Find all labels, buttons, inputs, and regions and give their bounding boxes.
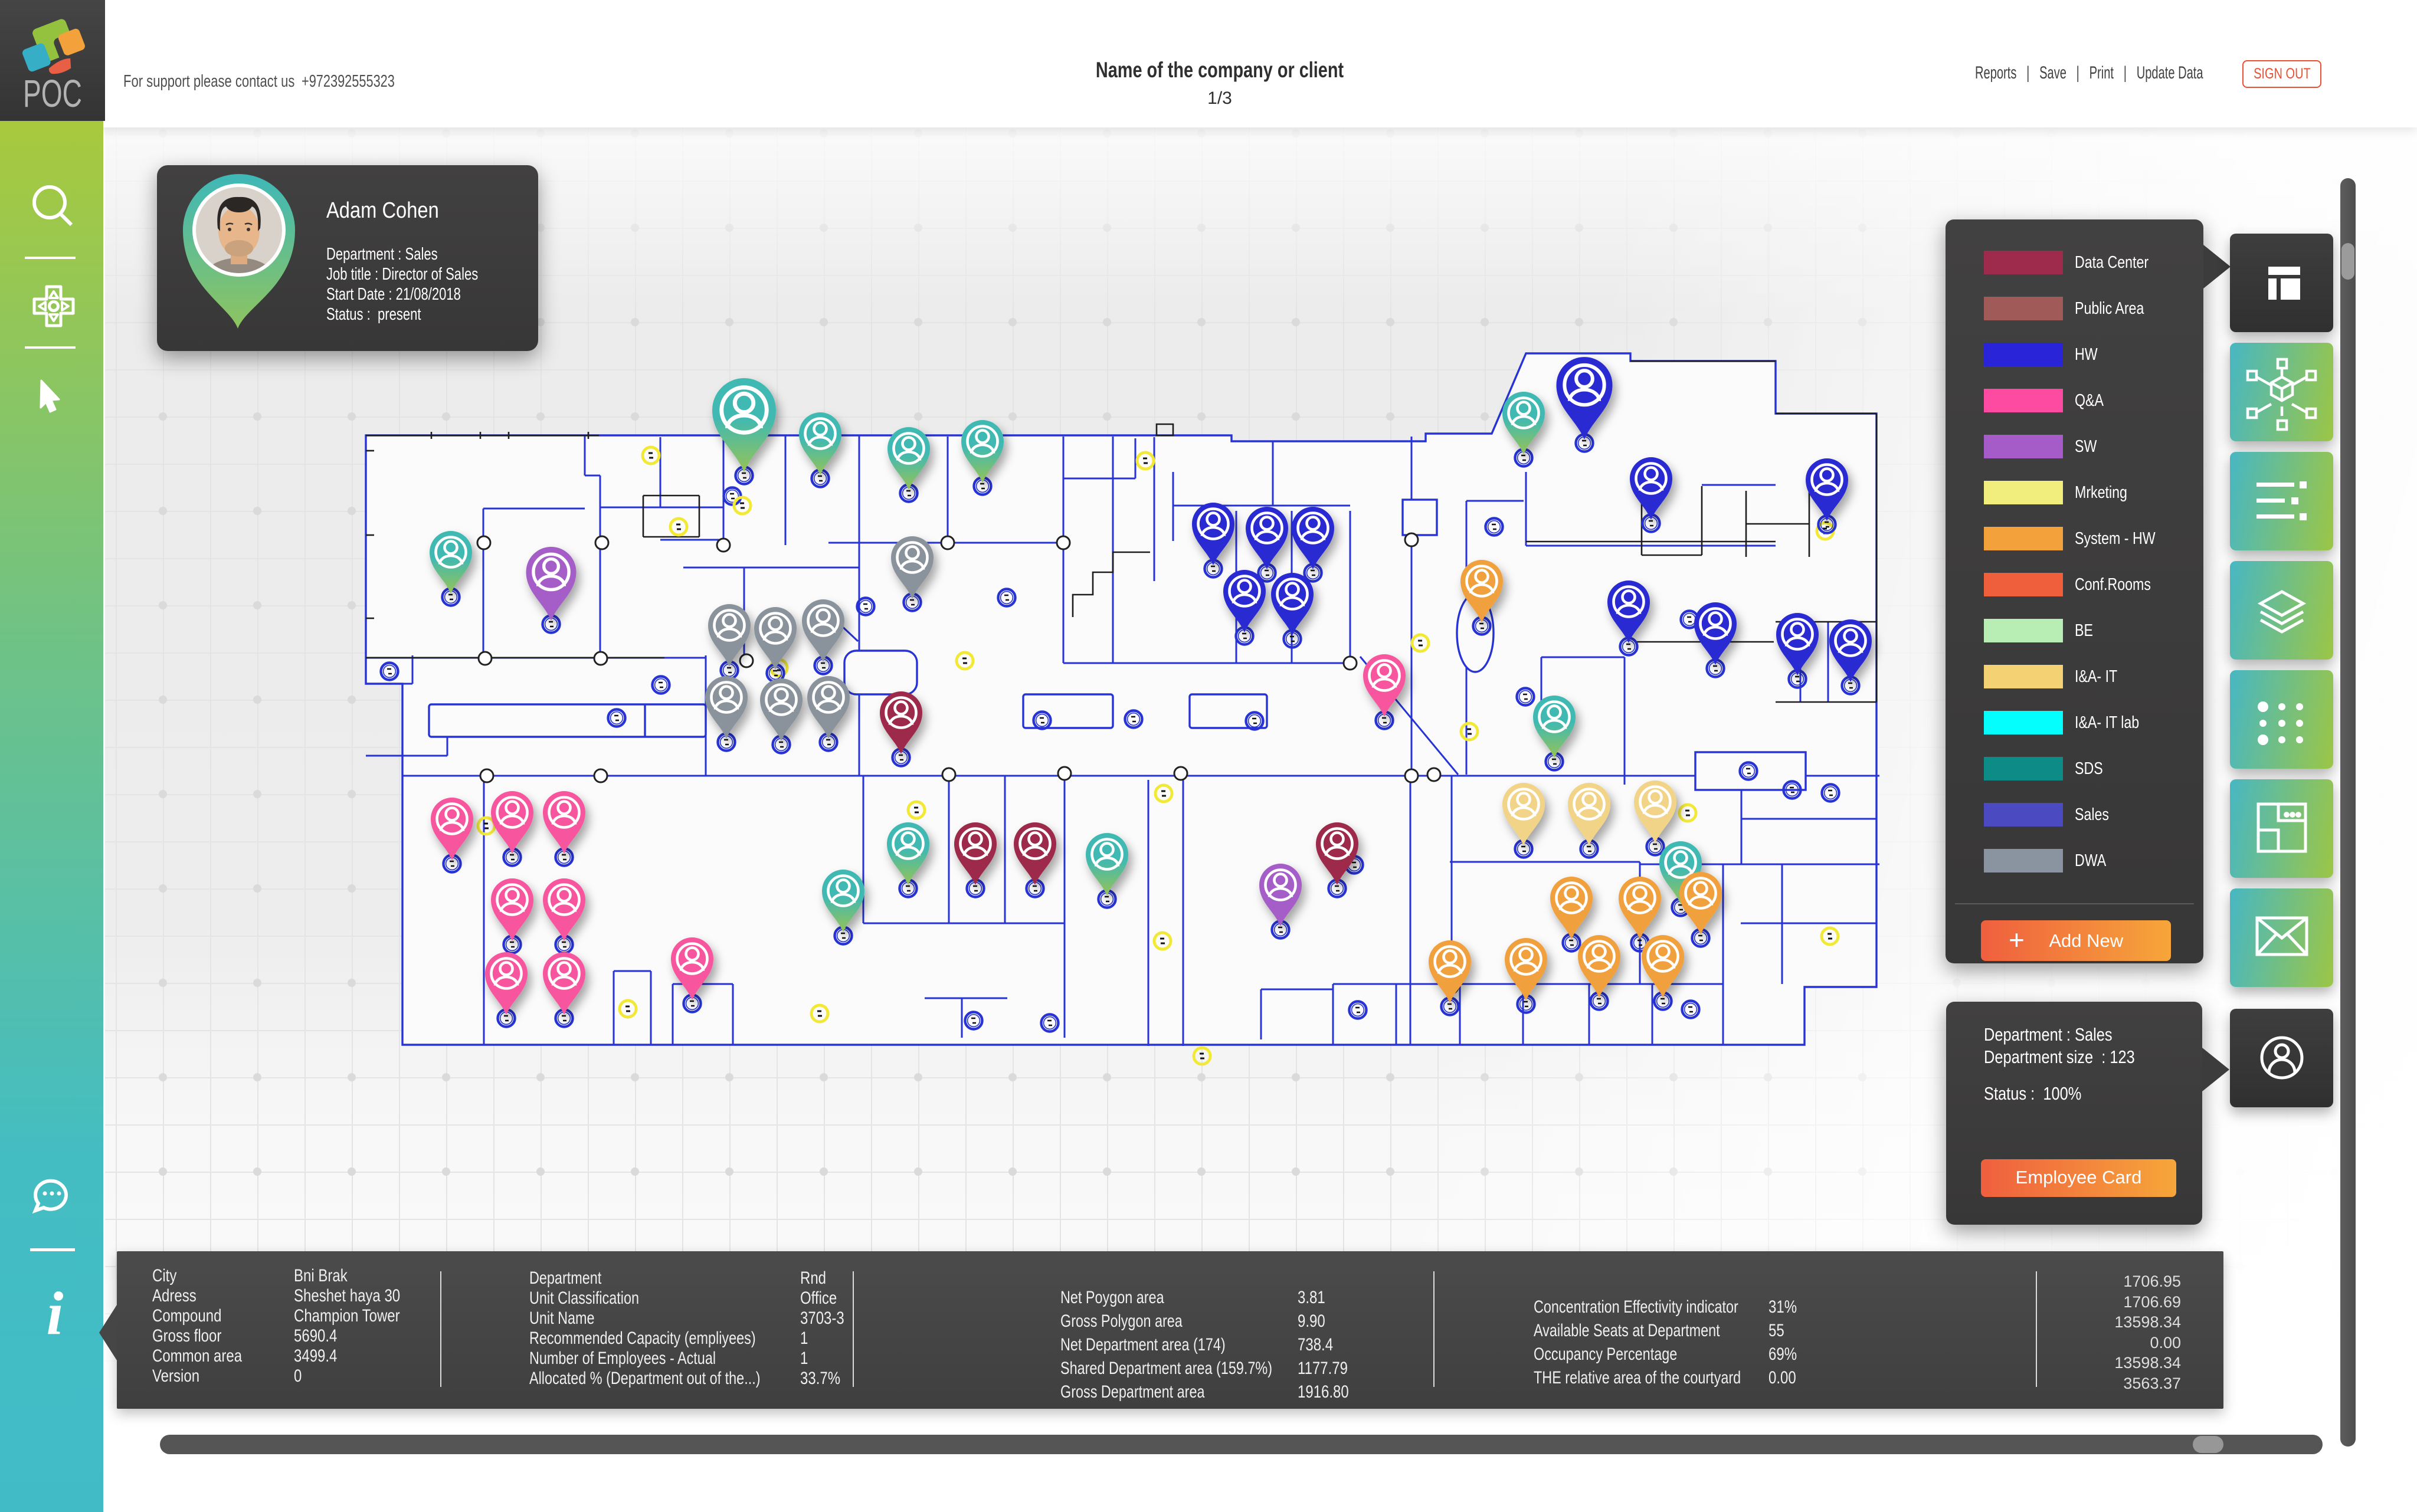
svg-text:i: i	[47, 1280, 64, 1347]
svg-text:POC: POC	[23, 71, 82, 115]
